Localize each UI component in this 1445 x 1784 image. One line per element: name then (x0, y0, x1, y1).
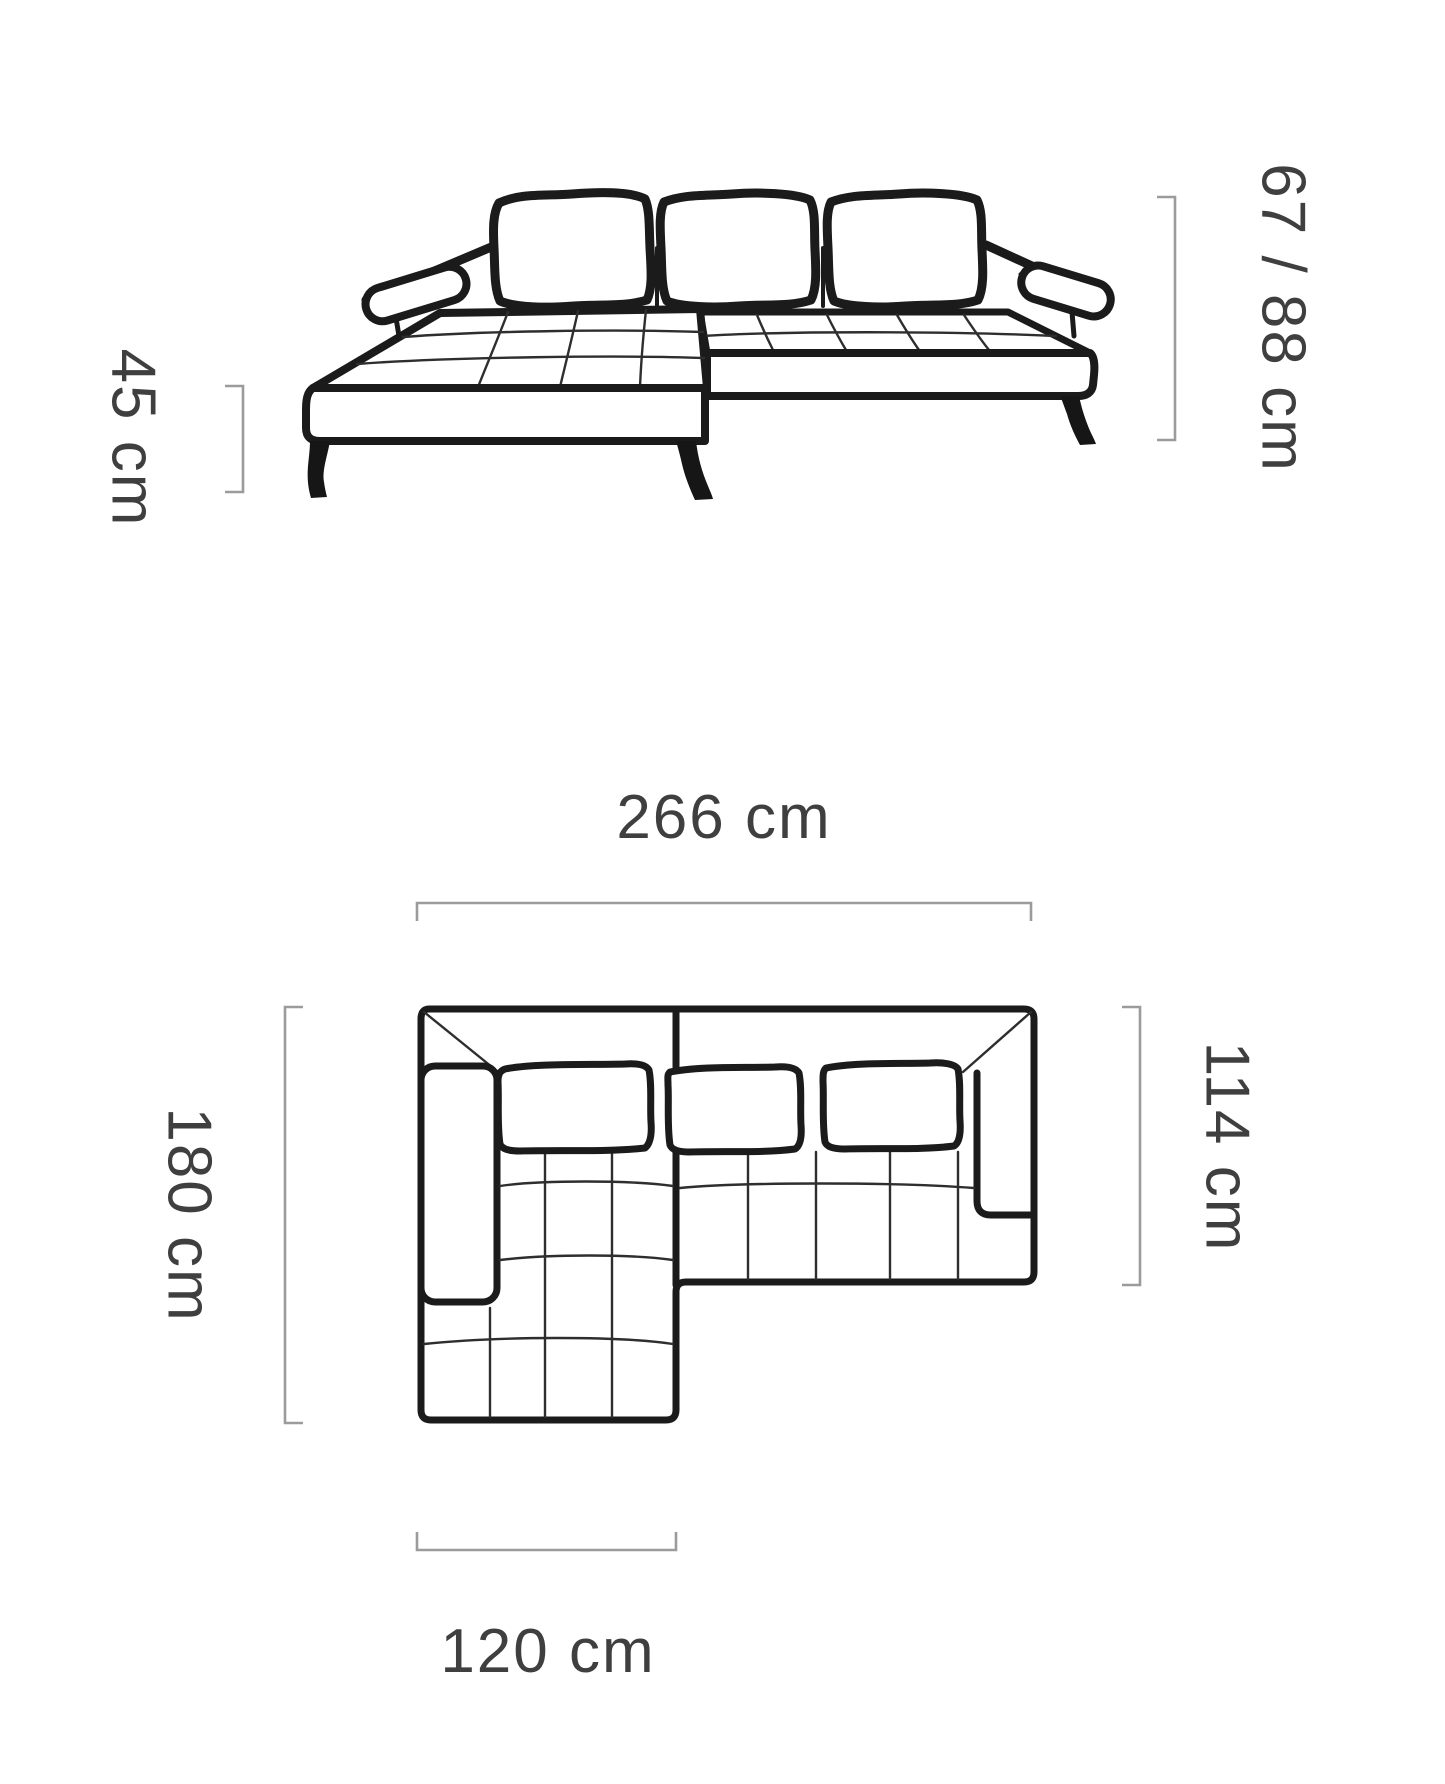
total-width-label: 266 cm (616, 783, 831, 852)
body-depth-label: 114 cm (1192, 1042, 1261, 1253)
total-depth-bracket (285, 1007, 303, 1423)
plan-left-armrest (421, 1066, 497, 1302)
seat-height-label: 45 cm (98, 349, 167, 528)
back-pillow-left (494, 193, 652, 308)
right-armrest-post (1072, 312, 1074, 336)
diagram-canvas: 45 cm 67 / 88 cm 26 (0, 0, 1445, 1784)
top-view-sofa (421, 1009, 1034, 1420)
chaise-base (306, 388, 705, 441)
right-section-leg (1060, 396, 1096, 445)
backrest-height-label: 67 / 88 cm (1248, 163, 1317, 472)
backrest-height-bracket (1157, 197, 1175, 440)
chaise-width-label: 120 cm (440, 1617, 655, 1686)
chaise-width-bracket (417, 1532, 676, 1550)
plan-pillow-middle (668, 1067, 801, 1152)
plan-pillow-left (498, 1064, 651, 1151)
back-pillow-right (827, 193, 983, 307)
body-depth-bracket (1122, 1007, 1140, 1285)
total-depth-label: 180 cm (154, 1107, 223, 1322)
plan-pillow-right (823, 1063, 960, 1149)
seat-height-bracket (225, 386, 243, 492)
back-pillow-middle (660, 193, 816, 307)
right-base (707, 353, 1094, 396)
right-armrest-pad (1017, 261, 1115, 320)
chaise-right-leg (676, 441, 713, 500)
total-width-bracket (417, 903, 1031, 921)
chaise-left-leg (308, 441, 330, 498)
front-view-sofa (306, 193, 1115, 500)
